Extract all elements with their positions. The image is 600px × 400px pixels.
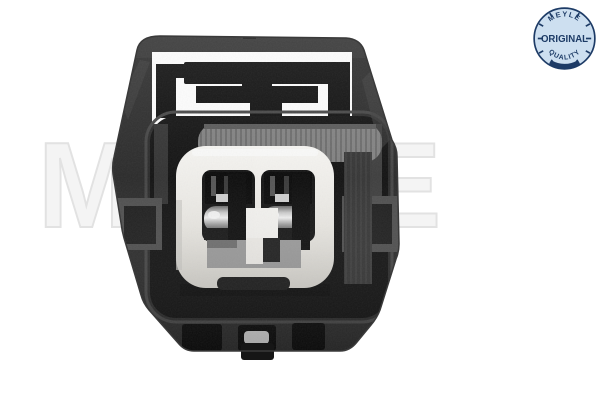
product-photo	[0, 0, 600, 400]
badge-original-text: ORIGINAL	[541, 34, 588, 45]
original-quality-badge: MEYLE ORIGINAL QUALITY	[531, 5, 598, 72]
product-page: MEYLE	[0, 0, 600, 400]
grain-overlay	[105, 25, 405, 365]
